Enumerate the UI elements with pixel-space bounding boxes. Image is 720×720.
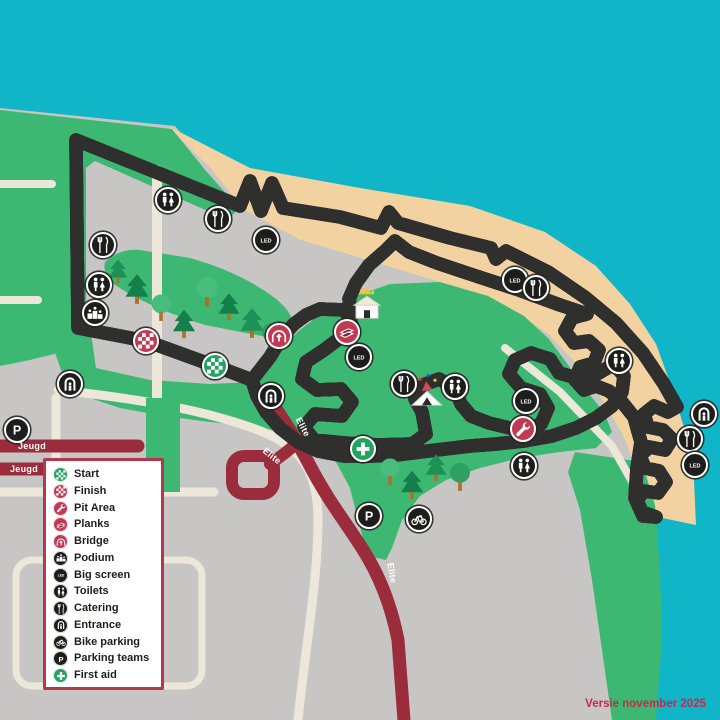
legend-item-podium: Podium [53,551,155,566]
bigscreen-icon: LED [53,568,68,583]
legend-item-bigscreen: LEDBig screen [53,568,155,583]
legend-item-label: Podium [74,553,114,564]
podium-icon [53,551,68,566]
legend-item-label: Start [74,469,99,480]
legend-item-label: Entrance [74,620,121,631]
course-map: PLEDLEDLEDLEDPLED JeugdJeugdEliteEliteEl… [0,0,720,720]
legend-item-catering: Catering [53,601,155,616]
bikeparking-icon [53,635,68,650]
bridge-icon [53,534,68,549]
legend-item-label: Bridge [74,536,109,547]
entrance-icon [53,618,68,633]
svg-text:P: P [58,655,63,664]
svg-text:LED: LED [57,574,64,578]
legend-item-label: Planks [74,519,109,530]
legend-item-bikeparking: Bike parking [53,635,155,650]
legend-item-start: Start [53,467,155,482]
legend-item-entrance: Entrance [53,618,155,633]
legend-item-pit: Pit Area [53,501,155,516]
legend-item-label: First aid [74,670,117,681]
start-icon [53,467,68,482]
legend-item-label: Catering [74,603,119,614]
toilets-icon [53,584,68,599]
legend-item-label: Finish [74,486,106,497]
legend-item-label: Pit Area [74,503,115,514]
planks-icon [53,517,68,532]
legend-item-parking: PParking teams [53,651,155,666]
catering-icon [53,601,68,616]
legend-item-bridge: Bridge [53,534,155,549]
finish-icon [53,484,68,499]
version-label: Versie november 2025 [585,698,706,710]
legend-item-firstaid: First aid [53,668,155,683]
legend-item-label: Bike parking [74,637,140,648]
legend-item-planks: Planks [53,517,155,532]
legend-item-finish: Finish [53,484,155,499]
legend-item-label: Toilets [74,586,109,597]
legend-item-label: Parking teams [74,653,149,664]
pit-icon [53,501,68,516]
firstaid-icon [53,668,68,683]
legend-item-toilets: Toilets [53,584,155,599]
parking-icon: P [53,651,68,666]
legend-item-label: Big screen [74,570,130,581]
legend: StartFinishPit AreaPlanksBridgePodiumLED… [43,458,164,690]
